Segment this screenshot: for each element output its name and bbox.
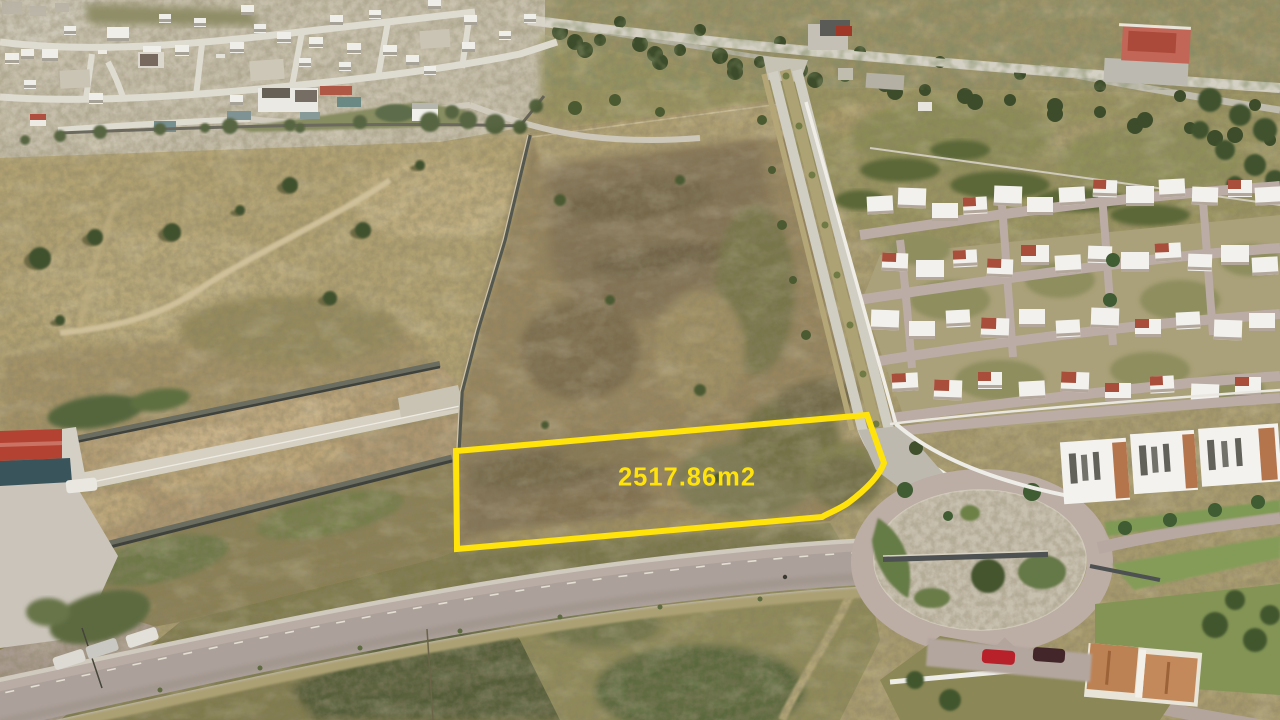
svg-text:2517.86m2: 2517.86m2 xyxy=(618,464,756,492)
